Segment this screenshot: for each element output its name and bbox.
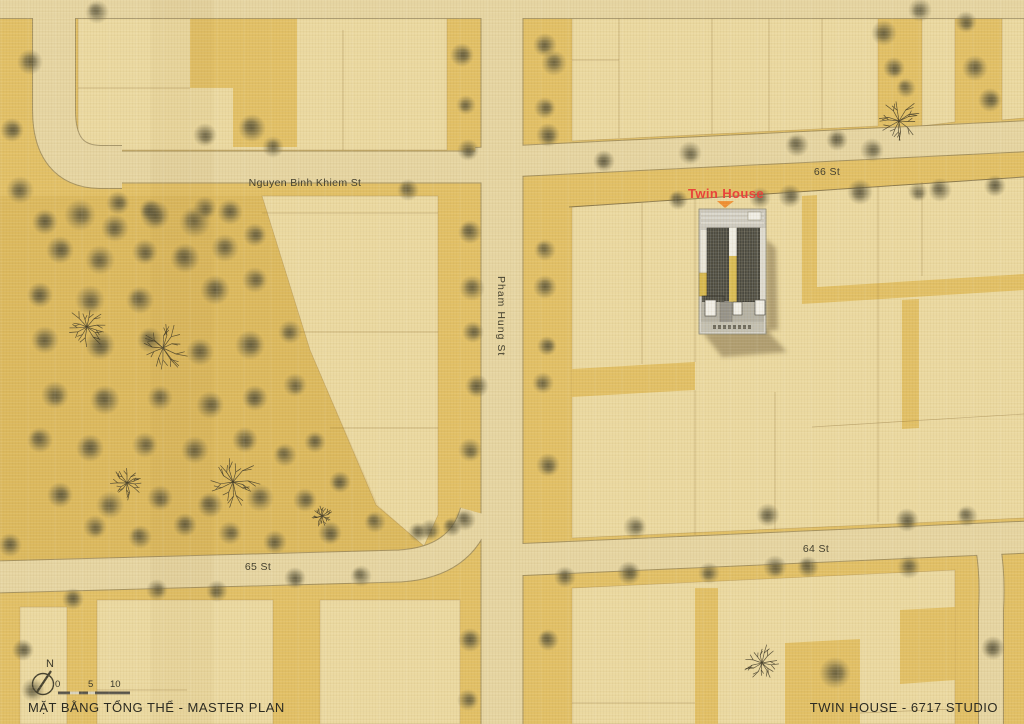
street-label-pham-hung: Pham Hung St xyxy=(495,276,507,356)
tree xyxy=(542,460,556,474)
tree xyxy=(624,566,638,580)
tree xyxy=(985,642,999,656)
tree xyxy=(769,562,783,576)
tree xyxy=(199,130,213,144)
tree xyxy=(200,495,216,511)
tree xyxy=(535,377,548,390)
tree xyxy=(469,380,483,394)
tree xyxy=(539,631,552,644)
tree xyxy=(72,205,91,224)
tree xyxy=(147,208,165,226)
tree xyxy=(888,63,901,76)
tree xyxy=(178,517,192,531)
tree xyxy=(459,100,471,112)
tree xyxy=(799,558,812,571)
tree xyxy=(289,380,303,394)
tree xyxy=(225,526,239,540)
tree xyxy=(246,391,262,407)
tree xyxy=(204,397,221,414)
block xyxy=(572,18,878,141)
tree xyxy=(250,228,264,242)
tree xyxy=(827,663,846,682)
studio-credit: TWIN HOUSE - 6717 STUDIO xyxy=(810,700,998,715)
tree xyxy=(101,498,118,515)
tree xyxy=(152,389,168,405)
tree xyxy=(630,520,644,534)
tree xyxy=(462,145,475,158)
tree xyxy=(183,210,202,229)
tree xyxy=(931,181,945,195)
north-label: N xyxy=(46,658,66,670)
tree xyxy=(113,196,127,210)
tree xyxy=(88,3,102,17)
tree xyxy=(902,559,916,573)
block xyxy=(320,600,460,724)
master-plan-canvas: Nguyen Binh Khiem St 66 St Pham Hung St … xyxy=(0,0,1024,724)
tree xyxy=(282,326,296,340)
tree xyxy=(366,513,379,526)
tree xyxy=(596,155,609,168)
tree xyxy=(242,118,259,135)
tree xyxy=(289,573,302,586)
tree xyxy=(267,536,281,550)
tree xyxy=(701,567,714,580)
street-label-nguyen-binh-khiem: Nguyen Binh Khiem St xyxy=(215,177,395,189)
tree xyxy=(912,4,926,18)
tree xyxy=(252,489,269,506)
tree xyxy=(249,272,265,288)
tree xyxy=(308,434,321,447)
tree xyxy=(37,213,53,229)
site-plan-graphic xyxy=(0,0,1024,724)
roof-hatch-right xyxy=(737,228,760,302)
tree xyxy=(867,143,881,157)
tree xyxy=(540,101,553,114)
tree xyxy=(276,446,290,460)
tree xyxy=(11,183,28,200)
tree xyxy=(54,487,70,503)
roof-hatch-left xyxy=(707,228,729,301)
tree xyxy=(92,338,110,356)
tree xyxy=(958,507,971,520)
tree xyxy=(106,221,123,238)
tree xyxy=(174,247,192,265)
tree xyxy=(851,185,867,201)
tree xyxy=(90,252,108,270)
tree xyxy=(209,585,222,598)
tree xyxy=(985,93,999,107)
tree xyxy=(139,437,155,453)
tree xyxy=(66,591,79,604)
tree xyxy=(324,528,338,542)
tree xyxy=(192,343,209,360)
tree xyxy=(3,537,17,551)
tree xyxy=(153,492,169,508)
tree xyxy=(967,59,983,75)
tree xyxy=(461,223,475,237)
tree xyxy=(760,509,774,523)
tree xyxy=(31,288,47,304)
scale-bar xyxy=(58,692,130,695)
tree xyxy=(898,80,910,92)
scale-tick-0: 0 xyxy=(55,679,60,690)
tree xyxy=(538,279,552,293)
tree xyxy=(206,280,224,298)
tree xyxy=(266,139,279,152)
tree xyxy=(82,439,99,456)
tree xyxy=(468,325,481,338)
block xyxy=(922,18,955,126)
tree xyxy=(543,340,555,352)
tree xyxy=(243,336,261,354)
tree xyxy=(30,430,46,446)
street-64-branch xyxy=(988,546,992,724)
tree xyxy=(94,389,112,407)
tree xyxy=(217,239,234,256)
tree xyxy=(913,188,925,200)
tree xyxy=(558,569,571,582)
drawing-title: MẶT BẰNG TỔNG THỂ - MASTER PLAN xyxy=(28,700,285,715)
tree xyxy=(901,515,915,529)
scale-tick-10: 10 xyxy=(110,679,121,690)
tree xyxy=(830,132,843,145)
tree xyxy=(332,476,345,489)
tree xyxy=(457,48,471,62)
tree xyxy=(89,522,103,536)
tree xyxy=(542,130,556,144)
tree xyxy=(131,528,145,542)
tree xyxy=(464,445,478,459)
tree xyxy=(960,17,973,30)
tree xyxy=(82,293,100,311)
site-label-twin-house: Twin House xyxy=(662,186,790,201)
tree xyxy=(444,519,456,531)
tree xyxy=(22,53,38,69)
tree xyxy=(988,178,1001,191)
tree xyxy=(54,242,71,259)
tree xyxy=(36,333,53,350)
street-label-64-st: 64 St xyxy=(784,543,848,555)
tree xyxy=(536,241,549,254)
tree xyxy=(222,203,238,219)
tree xyxy=(424,525,437,538)
street-label-66-st: 66 St xyxy=(795,166,859,178)
tree xyxy=(300,493,314,507)
tree xyxy=(7,123,21,137)
tree xyxy=(186,443,203,460)
tree xyxy=(238,434,254,450)
tree xyxy=(152,583,165,596)
tree xyxy=(875,26,891,42)
tree xyxy=(48,389,65,406)
street-label-65-st: 65 St xyxy=(226,561,290,573)
tree xyxy=(463,632,477,646)
scale-tick-5: 5 xyxy=(88,679,93,690)
tree xyxy=(464,279,480,295)
tree xyxy=(138,246,154,262)
tree xyxy=(130,290,147,307)
tree xyxy=(788,136,802,150)
tree xyxy=(463,693,476,706)
block-twin-house xyxy=(572,177,1024,538)
tree xyxy=(352,567,365,580)
tree xyxy=(399,181,412,194)
tree xyxy=(684,148,698,162)
tree xyxy=(18,643,31,656)
tree xyxy=(546,54,562,70)
